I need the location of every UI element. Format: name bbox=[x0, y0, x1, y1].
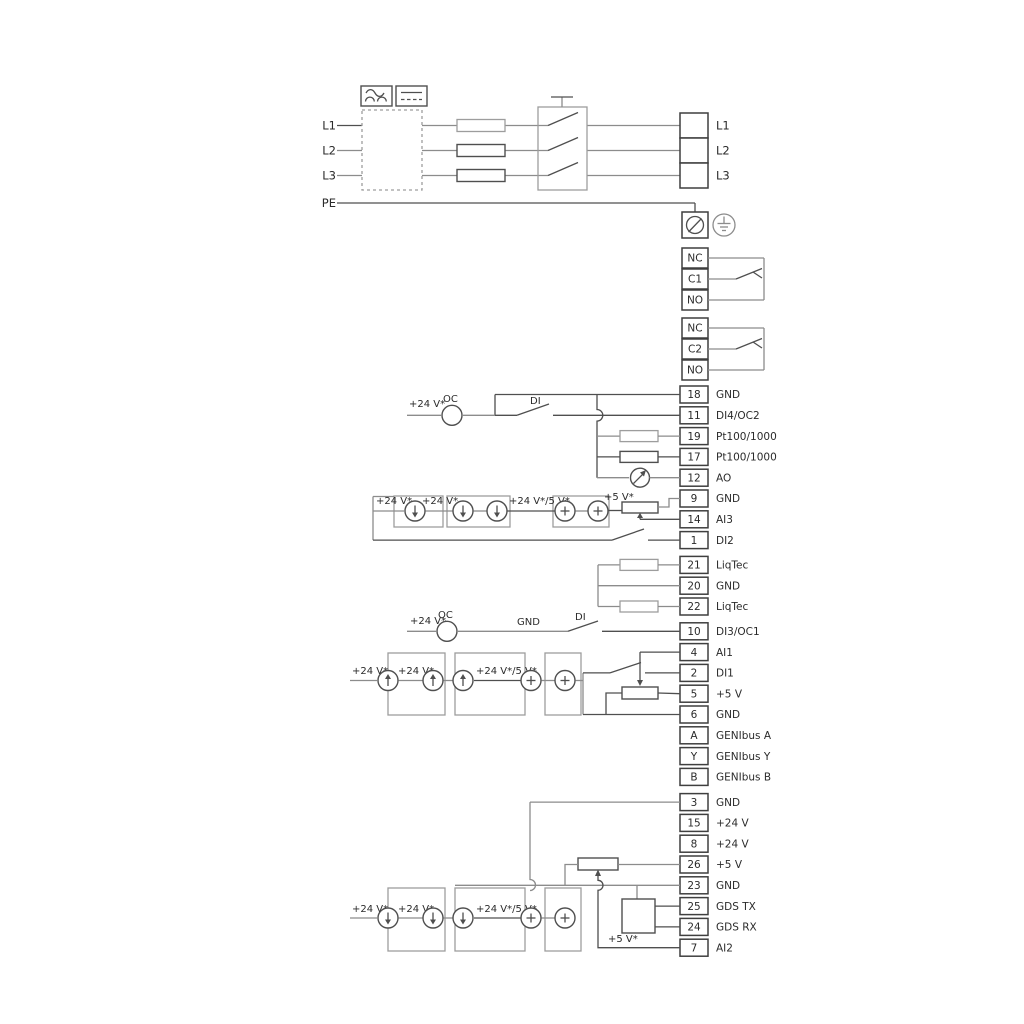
current-source-icon bbox=[378, 908, 398, 928]
terminal-label: AI3 bbox=[716, 514, 733, 526]
terminal-label: +24 V bbox=[716, 818, 749, 830]
terminal-number: 6 bbox=[691, 709, 698, 721]
current-source-icon bbox=[423, 671, 443, 691]
terminal-number: 11 bbox=[687, 410, 700, 422]
plus-source-icon bbox=[555, 908, 575, 928]
terminal-label: GND bbox=[716, 709, 740, 721]
schematic-canvas: L1 L2 L3 PE bbox=[0, 0, 1024, 1024]
gds-module-box bbox=[622, 885, 680, 933]
relay2-nc: NC bbox=[687, 323, 702, 335]
terminal-label: GDS RX bbox=[716, 922, 757, 934]
terminal-label: GND bbox=[716, 580, 740, 592]
terminal-label: DI2 bbox=[716, 535, 734, 547]
io-block2-section: 10 4 2 5 6 A Y B DI3/OC1 AI1 DI1 +5 V GN… bbox=[350, 610, 772, 785]
terminal-number: 24 bbox=[687, 922, 701, 934]
io-block1-terminals: 18 11 19 17 12 9 14 1 GND DI4/OC2 Pt100/… bbox=[680, 386, 777, 549]
terminal-label: GND bbox=[716, 389, 740, 401]
relay1-contact bbox=[708, 258, 764, 300]
potentiometer bbox=[622, 502, 658, 513]
relay2-contact bbox=[708, 328, 764, 370]
out-label-l2: L2 bbox=[716, 144, 730, 158]
terminal-number: 4 bbox=[691, 647, 698, 659]
mains-wires bbox=[337, 126, 680, 176]
plus-source-icon bbox=[555, 501, 575, 521]
io-block1-section: 18 11 19 17 12 9 14 1 GND DI4/OC2 Pt100/… bbox=[373, 386, 777, 549]
relay1-section: NC C1 NO bbox=[682, 248, 764, 310]
terminal-label: GDS TX bbox=[716, 901, 756, 913]
terminal-label: GND bbox=[716, 797, 740, 809]
earth-icon bbox=[713, 214, 735, 236]
terminal-label: GENIbus Y bbox=[716, 751, 771, 763]
terminal-label: GND bbox=[716, 880, 740, 892]
terminal-label: DI1 bbox=[716, 668, 734, 680]
mains-label-l1: L1 bbox=[322, 119, 336, 133]
potentiometer bbox=[578, 858, 618, 870]
terminal-number: B bbox=[690, 772, 697, 784]
terminal-number: 7 bbox=[691, 942, 698, 954]
terminal-number: 5 bbox=[691, 688, 698, 700]
wire-hop bbox=[530, 802, 536, 890]
terminal-number: 22 bbox=[687, 601, 700, 613]
terminal-number: 3 bbox=[691, 797, 698, 809]
sensor-branches bbox=[597, 395, 680, 488]
terminal-label: +24 V bbox=[716, 838, 749, 850]
terminal-number: 18 bbox=[687, 389, 700, 401]
current-source-icon bbox=[453, 908, 473, 928]
terminal-label: GENIbus B bbox=[716, 772, 771, 784]
terminal-number: A bbox=[690, 730, 698, 742]
gnd-feed-wiring bbox=[455, 802, 680, 890]
terminal-label: GND bbox=[716, 493, 740, 505]
plus-source-icon bbox=[521, 908, 541, 928]
mains-output-block: L1 L2 L3 bbox=[680, 113, 730, 188]
supply-options-row3: +24 V* +24 V* +24 V*/5 V* bbox=[350, 888, 581, 951]
terminal-label: +5 V bbox=[716, 688, 743, 700]
relay1-c1: C1 bbox=[688, 274, 702, 286]
resistor bbox=[620, 431, 658, 442]
io-block3-terminals: 3 15 8 26 23 25 24 7 GND +24 V +24 V +5 … bbox=[680, 794, 757, 957]
terminal-label: DI4/OC2 bbox=[716, 410, 760, 422]
terminal-number: 17 bbox=[687, 452, 700, 464]
terminal-label: GENIbus A bbox=[716, 730, 772, 742]
terminal-label: Pt100/1000 bbox=[716, 452, 777, 464]
di-label: DI bbox=[575, 612, 586, 623]
oc-label: OC bbox=[438, 610, 453, 621]
io-block2-terminals: 10 4 2 5 6 A Y B DI3/OC1 AI1 DI1 +5 V GN… bbox=[680, 623, 772, 786]
terminal-number: 8 bbox=[691, 838, 698, 850]
io-block3-section: 3 15 8 26 23 25 24 7 GND +24 V +24 V +5 … bbox=[350, 794, 757, 957]
terminal-number: 14 bbox=[687, 514, 701, 526]
current-source-icon bbox=[453, 501, 473, 521]
liqtec-sensors bbox=[598, 559, 680, 612]
current-source-icon bbox=[453, 671, 473, 691]
terminal-number: 10 bbox=[687, 626, 700, 638]
emc-filter-box bbox=[362, 110, 422, 190]
resistor bbox=[620, 601, 658, 612]
v5-label: +5 V* bbox=[608, 934, 638, 945]
oc-label: OC bbox=[443, 394, 458, 405]
terminal-number: 23 bbox=[687, 880, 700, 892]
terminal-number: 25 bbox=[687, 901, 700, 913]
wiring-diagram: L1 L2 L3 PE bbox=[0, 0, 1024, 1024]
supply-options-row1: +24 V* +24 V* +24 V*/5 V* bbox=[373, 492, 680, 540]
oc-circle-icon bbox=[442, 405, 462, 425]
terminal-number: 9 bbox=[691, 493, 698, 505]
current-source-icon bbox=[423, 908, 443, 928]
terminal-number: 15 bbox=[687, 818, 700, 830]
current-source-icon bbox=[378, 671, 398, 691]
mains-input-section: L1 L2 L3 PE bbox=[322, 86, 735, 238]
di-label: DI bbox=[530, 396, 541, 407]
dc-symbol-icon bbox=[396, 86, 427, 106]
mains-label-pe: PE bbox=[322, 196, 336, 210]
terminal-number: 21 bbox=[687, 560, 700, 572]
liqtec-section: 21 20 22 LiqTec GND LiqTec bbox=[598, 556, 749, 615]
terminal-number: 19 bbox=[687, 431, 700, 443]
supply-options-row2: +24 V* +24 V* +24 V*/5 V* bbox=[350, 652, 680, 715]
oc-circle-icon bbox=[437, 621, 457, 641]
wiper-arrow-icon bbox=[637, 680, 643, 686]
terminal-number: 2 bbox=[691, 668, 698, 680]
relay2-no: NO bbox=[687, 365, 703, 377]
terminal-label: AO bbox=[716, 472, 731, 484]
plus-source-icon bbox=[521, 671, 541, 691]
pe-wiring bbox=[337, 203, 695, 212]
terminal-label: +5 V bbox=[716, 859, 743, 871]
terminal-label: LiqTec bbox=[716, 560, 749, 572]
terminal-number: 1 bbox=[691, 535, 698, 547]
terminal-label: AI1 bbox=[716, 647, 733, 659]
terminal-number: 26 bbox=[687, 859, 701, 871]
relay2-c2: C2 bbox=[688, 344, 702, 356]
relay1-nc: NC bbox=[687, 253, 702, 265]
di4-switch-circuit: DI +24 V* OC bbox=[407, 394, 680, 425]
current-source-icon bbox=[487, 501, 507, 521]
terminal-label: Pt100/1000 bbox=[716, 431, 777, 443]
fuse bbox=[457, 120, 505, 182]
potentiometer bbox=[622, 687, 658, 699]
resistor bbox=[620, 559, 658, 570]
terminal-number: Y bbox=[690, 751, 698, 763]
terminal-label: LiqTec bbox=[716, 601, 749, 613]
ac-symbol-icon bbox=[361, 86, 392, 106]
v24-label: +24 V* bbox=[422, 496, 458, 507]
mains-label-l3: L3 bbox=[322, 169, 336, 183]
out-label-l1: L1 bbox=[716, 119, 730, 133]
terminal-number: 20 bbox=[687, 580, 700, 592]
out-label-l3: L3 bbox=[716, 169, 730, 183]
analog-meter-icon bbox=[631, 468, 650, 487]
v24-label: +24 V* bbox=[409, 399, 445, 410]
terminal-number: 12 bbox=[687, 472, 700, 484]
terminal-label: DI3/OC1 bbox=[716, 626, 760, 638]
terminal-label: AI2 bbox=[716, 942, 733, 954]
gnd-label: GND bbox=[517, 617, 540, 628]
plus-source-icon bbox=[588, 501, 608, 521]
pe-terminal-icon bbox=[682, 212, 708, 238]
di3-switch-circuit: +24 V* OC GND DI bbox=[407, 610, 680, 641]
plus-source-icon bbox=[555, 671, 575, 691]
resistor bbox=[620, 451, 658, 462]
relay2-section: NC C2 NO bbox=[682, 318, 764, 380]
mains-label-l2: L2 bbox=[322, 144, 336, 158]
relay1-no: NO bbox=[687, 295, 703, 307]
